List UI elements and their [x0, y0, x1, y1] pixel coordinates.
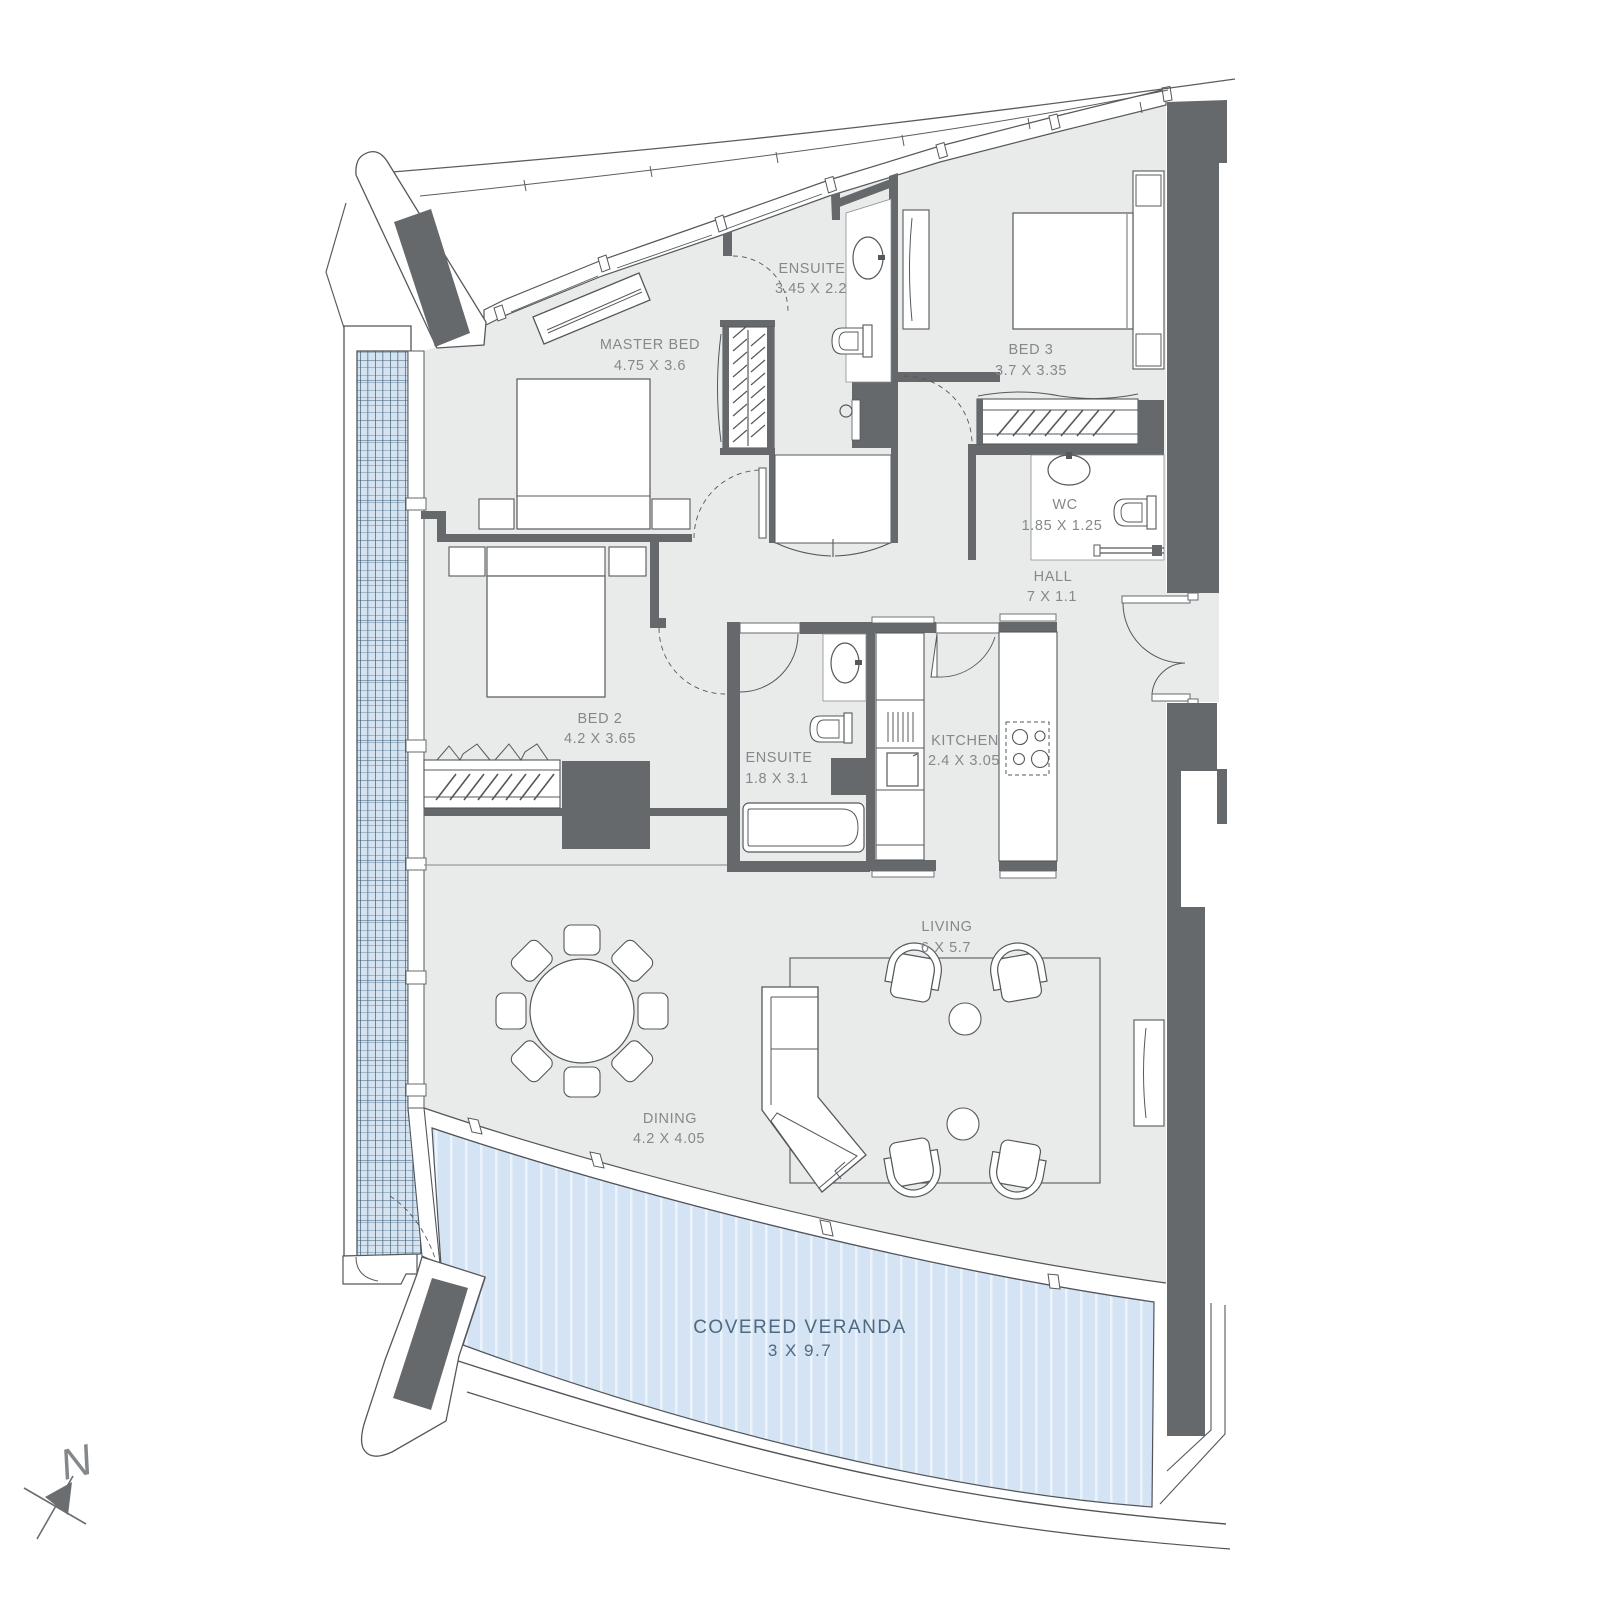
svg-text:6 X 5.7: 6 X 5.7	[921, 940, 971, 956]
svg-text:1.85 X 1.25: 1.85 X 1.25	[1022, 518, 1103, 534]
svg-text:BED 2: BED 2	[578, 711, 623, 727]
svg-text:1.8 X 3.1: 1.8 X 3.1	[745, 771, 808, 787]
svg-text:LIVING: LIVING	[921, 919, 972, 935]
svg-text:COVERED VERANDA: COVERED VERANDA	[693, 1317, 907, 1338]
svg-text:7 X 1.1: 7 X 1.1	[1027, 589, 1077, 605]
svg-text:WC: WC	[1052, 497, 1077, 513]
svg-text:4.2 X 3.65: 4.2 X 3.65	[564, 731, 636, 747]
svg-text:3 X 9.7: 3 X 9.7	[768, 1341, 832, 1360]
svg-text:4.75 X 3.6: 4.75 X 3.6	[614, 358, 686, 374]
svg-text:ENSUITE: ENSUITE	[745, 750, 812, 766]
svg-text:MASTER BED: MASTER BED	[600, 337, 700, 353]
svg-text:HALL: HALL	[1034, 569, 1073, 585]
svg-text:2.4 X 3.05: 2.4 X 3.05	[928, 753, 1000, 769]
svg-text:3.7 X 3.35: 3.7 X 3.35	[995, 363, 1067, 379]
svg-text:4.2 X 4.05: 4.2 X 4.05	[633, 1131, 705, 1147]
svg-text:KITCHEN: KITCHEN	[931, 733, 999, 749]
svg-text:3.45 X 2.2: 3.45 X 2.2	[775, 281, 847, 297]
svg-text:ENSUITE: ENSUITE	[778, 261, 845, 277]
svg-text:BED 3: BED 3	[1009, 342, 1054, 358]
svg-text:DINING: DINING	[643, 1111, 697, 1127]
